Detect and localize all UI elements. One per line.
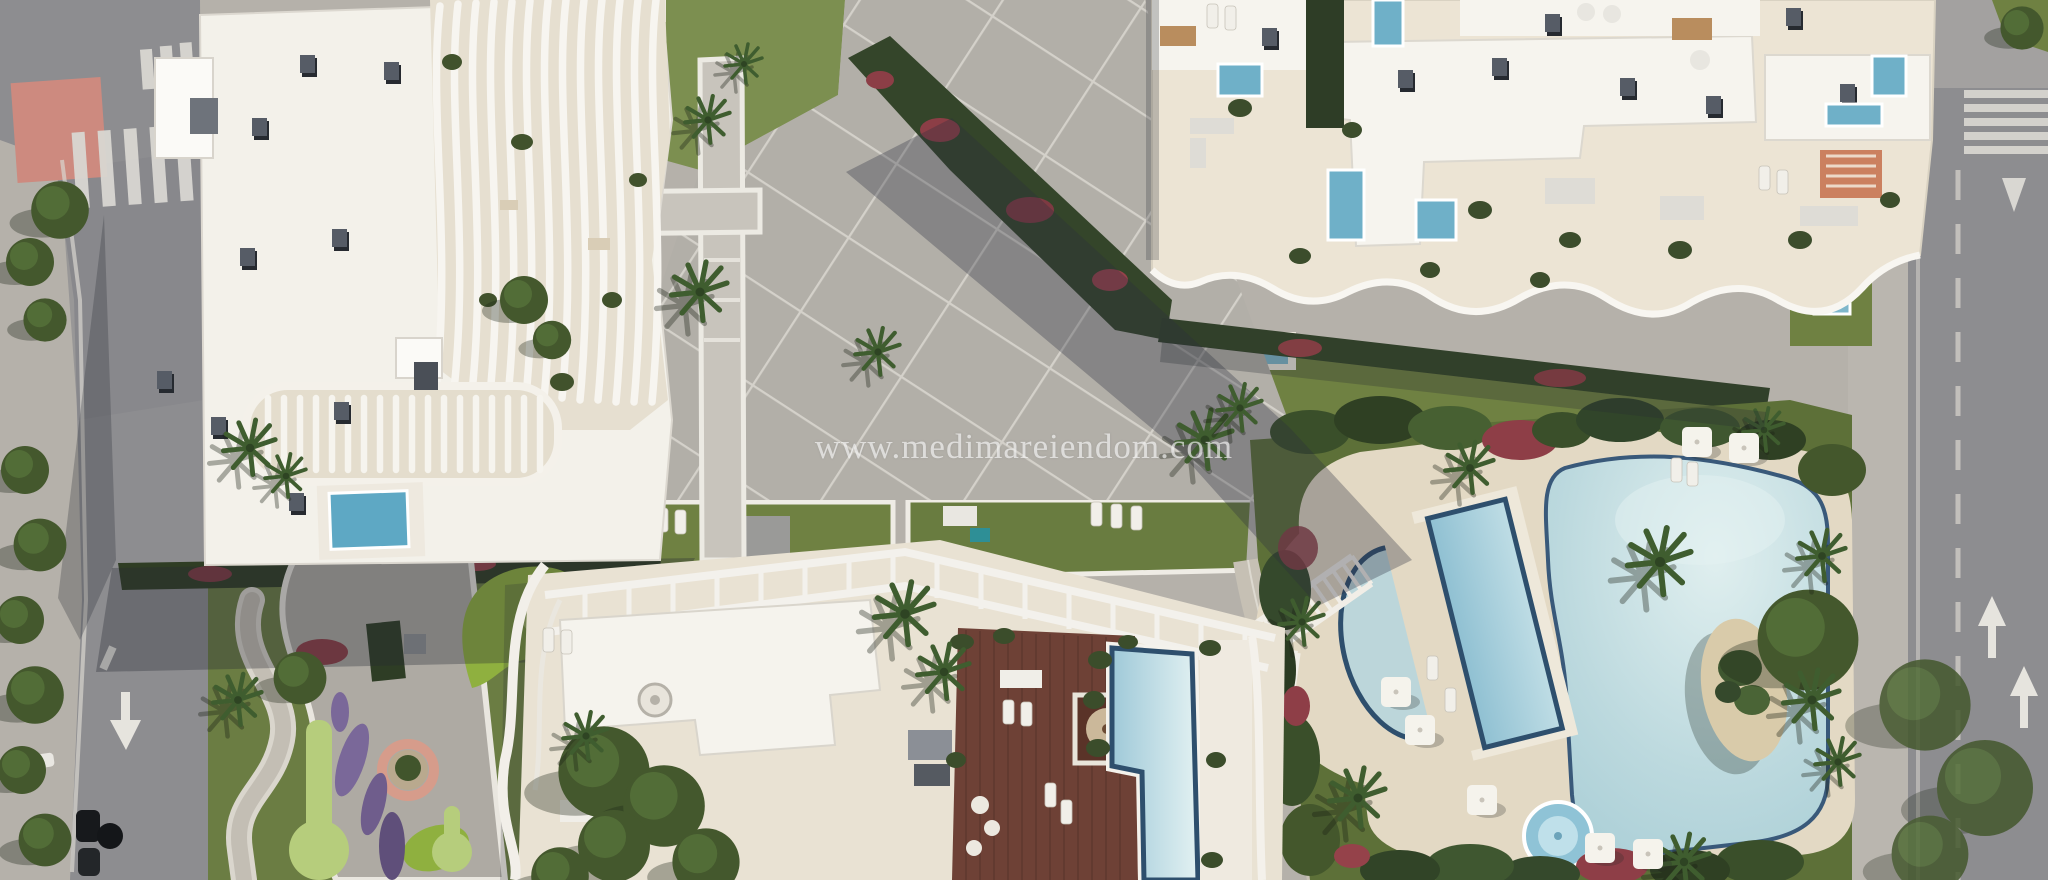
teal-lounger <box>970 528 990 542</box>
aerial-render: www.medimareiendom.com <box>0 0 2048 880</box>
pool-complex <box>1240 396 1866 880</box>
watermark-text: www.medimareiendom.com <box>815 427 1233 467</box>
dining-table <box>1672 18 1712 40</box>
plunge-pool <box>1373 0 1403 46</box>
hedge-gap <box>1306 0 1344 128</box>
plunge-pool-left <box>329 491 409 550</box>
pink-painted-corner <box>11 77 108 183</box>
building-top-left <box>155 0 672 565</box>
building-top-right <box>1146 0 1935 314</box>
deck-table <box>1000 670 1042 688</box>
